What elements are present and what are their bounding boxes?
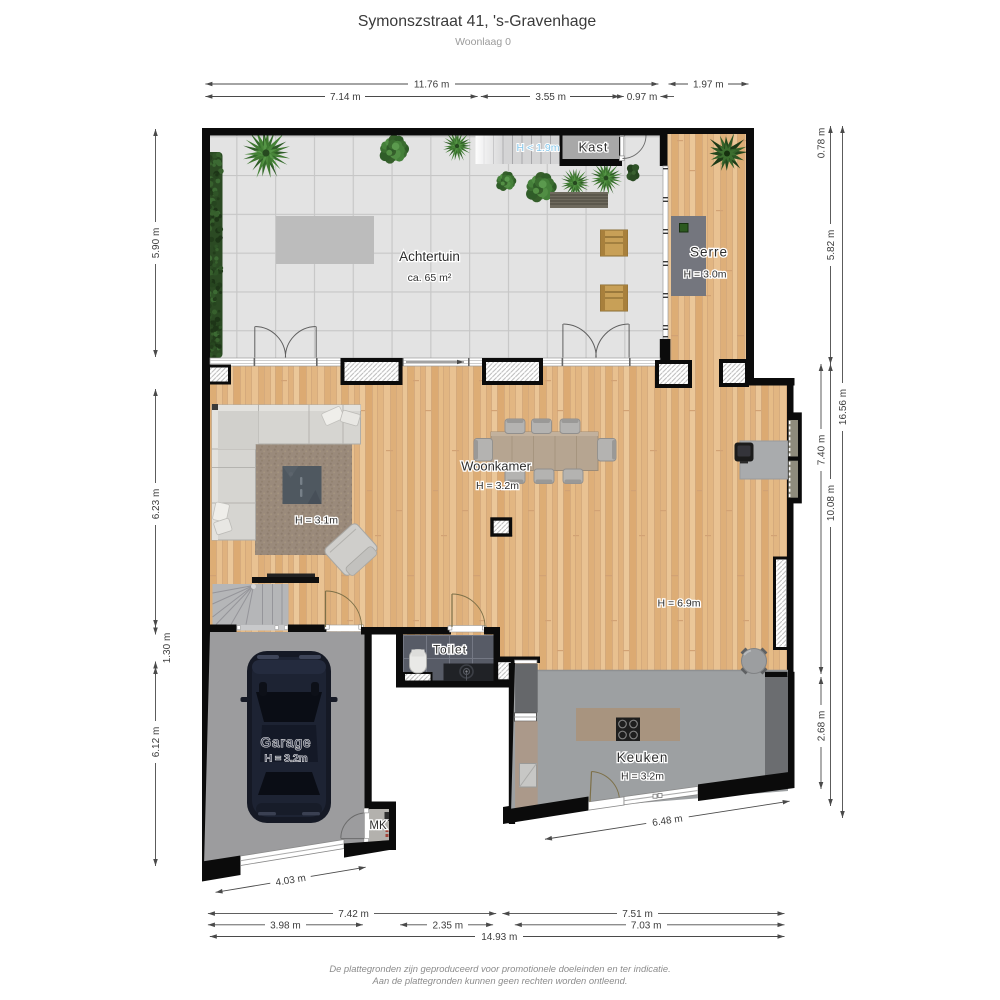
svg-text:3.55 m: 3.55 m [535, 92, 566, 103]
svg-text:7.03 m: 7.03 m [631, 920, 662, 931]
svg-text:1.30 m: 1.30 m [162, 633, 173, 664]
svg-text:Symonszstraat 41, 's-Gravenhag: Symonszstraat 41, 's-Gravenhage [358, 13, 597, 30]
svg-text:ca. 65 m²: ca. 65 m² [408, 272, 452, 284]
svg-text:MK: MK [369, 820, 387, 832]
svg-text:H = 3.0m: H = 3.0m [684, 269, 727, 281]
svg-text:7.40 m: 7.40 m [817, 435, 828, 466]
svg-text:7.51 m: 7.51 m [622, 909, 653, 920]
svg-text:H = 6.9m: H = 6.9m [658, 598, 701, 610]
svg-text:H = 3.1m: H = 3.1m [295, 515, 338, 527]
svg-text:7.14 m: 7.14 m [330, 92, 361, 103]
svg-text:6.23 m: 6.23 m [151, 489, 162, 520]
svg-text:H = 3.2m: H = 3.2m [265, 753, 308, 765]
svg-text:Garage: Garage [260, 735, 311, 750]
svg-text:3.98 m: 3.98 m [270, 920, 301, 931]
svg-text:Toilet: Toilet [433, 643, 467, 657]
svg-text:De plattegronden zijn geproduc: De plattegronden zijn geproduceerd voor … [329, 963, 670, 974]
svg-text:Kast: Kast [578, 140, 608, 155]
svg-text:2.68 m: 2.68 m [817, 711, 828, 742]
svg-text:16.56 m: 16.56 m [838, 389, 849, 425]
svg-text:Woonkamer: Woonkamer [461, 459, 532, 474]
svg-text:0.97 m: 0.97 m [627, 92, 658, 103]
svg-text:H = 3.2m: H = 3.2m [476, 480, 519, 492]
svg-text:5.82 m: 5.82 m [826, 230, 837, 261]
svg-text:10.08 m: 10.08 m [826, 485, 837, 521]
svg-text:11.76 m: 11.76 m [414, 80, 449, 91]
svg-text:1.97 m: 1.97 m [693, 80, 724, 91]
svg-text:H < 1.9m: H < 1.9m [517, 142, 560, 154]
svg-text:Aan de plattegronden kunnen ge: Aan de plattegronden kunnen geen rechten… [372, 975, 628, 986]
svg-text:5.90 m: 5.90 m [151, 228, 162, 259]
svg-text:H = 3.2m: H = 3.2m [621, 771, 664, 783]
svg-text:6.12 m: 6.12 m [151, 727, 162, 758]
svg-text:14.93 m: 14.93 m [481, 932, 517, 943]
svg-text:Woonlaag 0: Woonlaag 0 [455, 36, 511, 48]
svg-text:Keuken: Keuken [617, 750, 669, 765]
svg-text:2.35 m: 2.35 m [433, 920, 464, 931]
svg-text:Achtertuin: Achtertuin [399, 249, 460, 264]
svg-text:0.78 m: 0.78 m [817, 128, 828, 159]
svg-text:7.42 m: 7.42 m [338, 909, 369, 920]
svg-text:Serre: Serre [690, 245, 728, 260]
